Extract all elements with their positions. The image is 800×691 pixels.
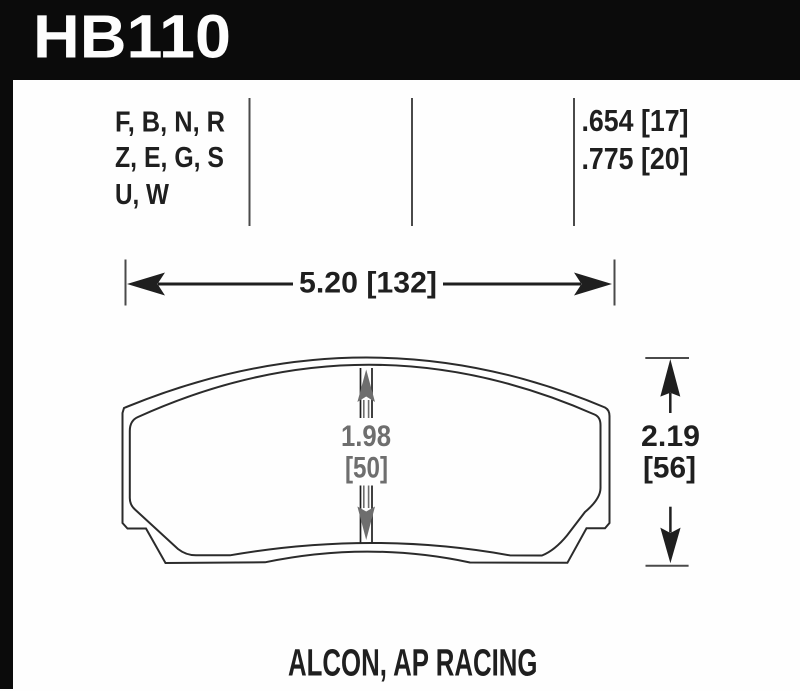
svg-text:[56]: [56]	[643, 452, 696, 485]
svg-text:Z, E, G, S: Z, E, G, S	[115, 142, 224, 174]
svg-text:U, W: U, W	[115, 179, 170, 211]
svg-text:1.98: 1.98	[341, 420, 391, 453]
svg-text:[50]: [50]	[345, 452, 388, 485]
svg-text:.654 [17]: .654 [17]	[582, 104, 689, 138]
svg-text:2.19: 2.19	[641, 420, 700, 453]
svg-text:.775 [20]: .775 [20]	[582, 142, 689, 176]
svg-text:HB110: HB110	[33, 3, 231, 72]
svg-text:5.20 [132]: 5.20 [132]	[299, 267, 437, 300]
svg-text:F, B, N, R: F, B, N, R	[115, 107, 225, 139]
svg-text:ALCON, AP RACING: ALCON, AP RACING	[288, 643, 538, 685]
